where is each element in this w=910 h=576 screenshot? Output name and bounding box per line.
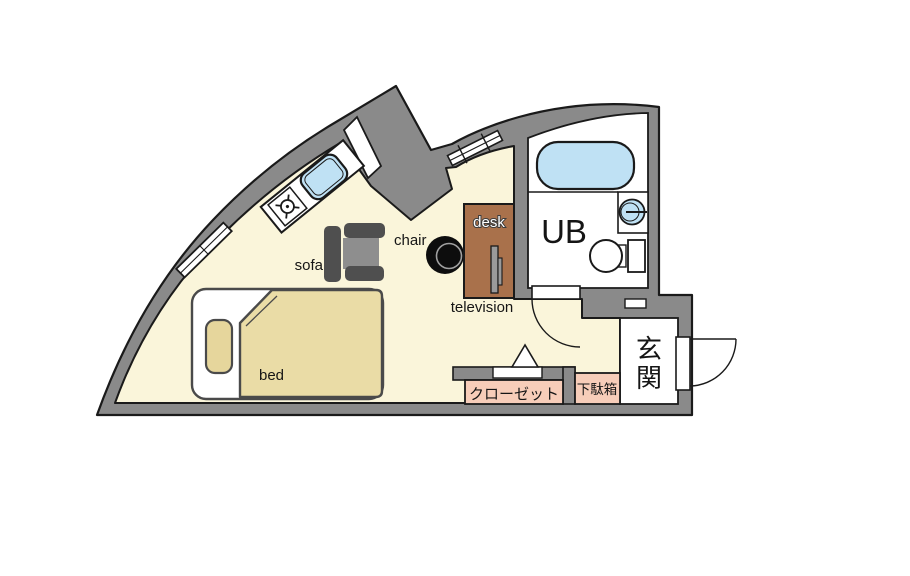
television-screen — [491, 246, 498, 293]
label-sofa: sofa — [295, 257, 324, 274]
sofa — [324, 223, 385, 282]
sofa-back — [324, 226, 341, 282]
floor-plan-svg: sofa chair desk television bed UB 玄 関 クロ… — [0, 0, 910, 576]
label-entrance-char1: 玄 — [636, 334, 662, 364]
label-closet: クローゼット — [469, 386, 559, 403]
television-stand — [498, 258, 502, 285]
label-shoe-cabinet: 下駄箱 — [577, 382, 618, 397]
sofa-armrest-top — [344, 223, 385, 238]
closet-door-opening — [493, 367, 542, 378]
floor-plan: sofa chair desk television bed UB 玄 関 クロ… — [0, 0, 910, 576]
closet-side-wall — [563, 367, 575, 404]
label-entrance-char2: 関 — [636, 363, 662, 393]
label-desk: desk — [473, 214, 505, 231]
toilet-bowl — [590, 240, 622, 272]
bath-door-opening — [532, 286, 580, 299]
entrance-door-jamb — [676, 337, 690, 390]
sofa-seat — [343, 238, 379, 269]
chair — [426, 236, 464, 274]
label-chair: chair — [394, 232, 427, 249]
sofa-armrest-bottom — [345, 266, 384, 281]
toilet-tank — [628, 240, 645, 272]
bathtub — [537, 142, 634, 189]
label-bed: bed — [259, 367, 284, 384]
label-television: television — [451, 299, 514, 316]
entrance-door-swing-arc — [690, 339, 736, 386]
entrance-vent-window — [625, 299, 646, 308]
pillow — [206, 320, 232, 373]
label-unit-bath: UB — [541, 213, 587, 250]
bed — [192, 289, 383, 399]
